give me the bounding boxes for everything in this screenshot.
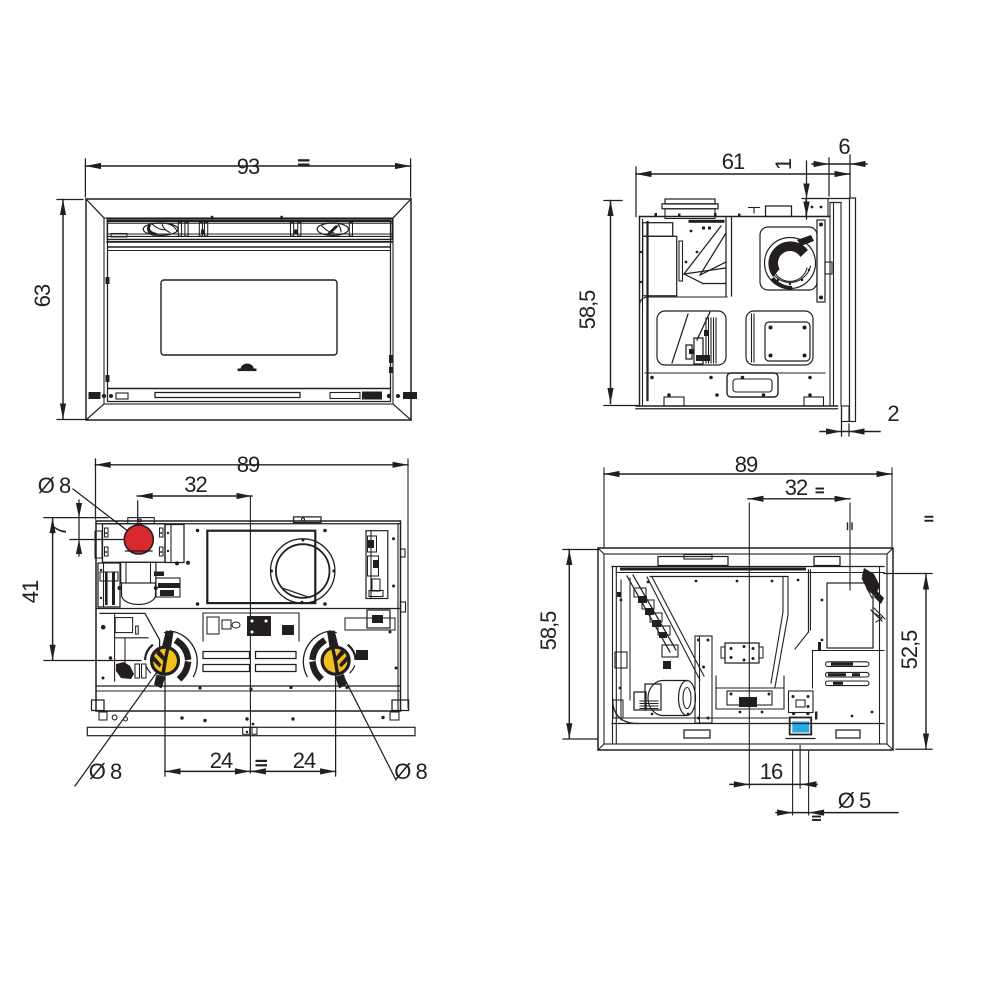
svg-text:6: 6 (838, 134, 850, 159)
svg-text:63: 63 (30, 284, 55, 307)
svg-text:Ø 5: Ø 5 (838, 788, 871, 813)
svg-text:89: 89 (237, 452, 260, 477)
svg-text:93: 93 (237, 154, 260, 179)
svg-text:61: 61 (722, 149, 745, 174)
svg-text:Ø 8: Ø 8 (394, 759, 427, 784)
svg-text:Ø 8: Ø 8 (89, 759, 122, 784)
svg-text:16: 16 (760, 759, 783, 784)
svg-text:1: 1 (771, 158, 796, 170)
svg-text:89: 89 (735, 452, 758, 477)
svg-text:58,5: 58,5 (575, 290, 600, 330)
svg-text:24: 24 (210, 748, 233, 773)
svg-text:2: 2 (887, 401, 899, 426)
svg-text:32: 32 (785, 475, 808, 500)
svg-text:24: 24 (293, 748, 316, 773)
svg-text:41: 41 (18, 580, 43, 603)
svg-text:32: 32 (184, 472, 207, 497)
svg-text:Ø 8: Ø 8 (38, 473, 71, 498)
svg-text:58,5: 58,5 (536, 611, 561, 651)
svg-text:52,5: 52,5 (897, 630, 922, 670)
